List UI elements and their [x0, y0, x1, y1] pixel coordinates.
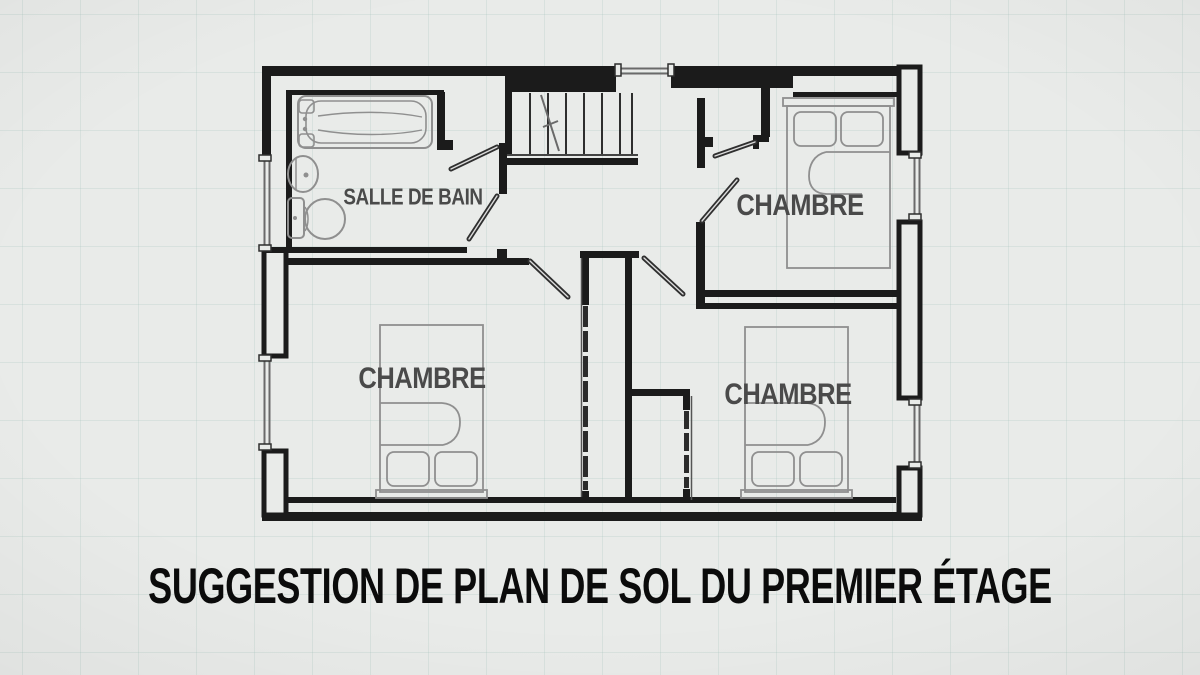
bed [741, 327, 852, 498]
sink [288, 156, 318, 192]
floor-plan-canvas: SALLE DE BAIN CHAMBRE CHAMBRE CHAMBRE SU… [0, 0, 1200, 675]
closet-doors [582, 258, 692, 500]
interior-walls [262, 88, 897, 500]
pillow [800, 452, 842, 486]
pillow [435, 452, 477, 486]
room-label-bathroom: SALLE DE BAIN [343, 184, 482, 211]
pillow [794, 112, 836, 146]
plan-title: SUGGESTION DE PLAN DE SOL DU PREMIER ÉTA… [148, 557, 1052, 615]
bed [783, 98, 894, 268]
bathtub [298, 96, 432, 148]
toilet [288, 198, 345, 239]
staircase [507, 93, 638, 155]
room-label-bedroom-bottom-right: CHAMBRE [724, 378, 851, 412]
pillow [841, 112, 883, 146]
room-label-bedroom-bottom-left: CHAMBRE [358, 362, 485, 396]
doors [451, 142, 755, 297]
room-label-bedroom-top-right: CHAMBRE [736, 189, 863, 223]
stair-direction-line [541, 95, 559, 151]
pillow [752, 452, 794, 486]
bed [376, 325, 487, 498]
pillow [387, 452, 429, 486]
